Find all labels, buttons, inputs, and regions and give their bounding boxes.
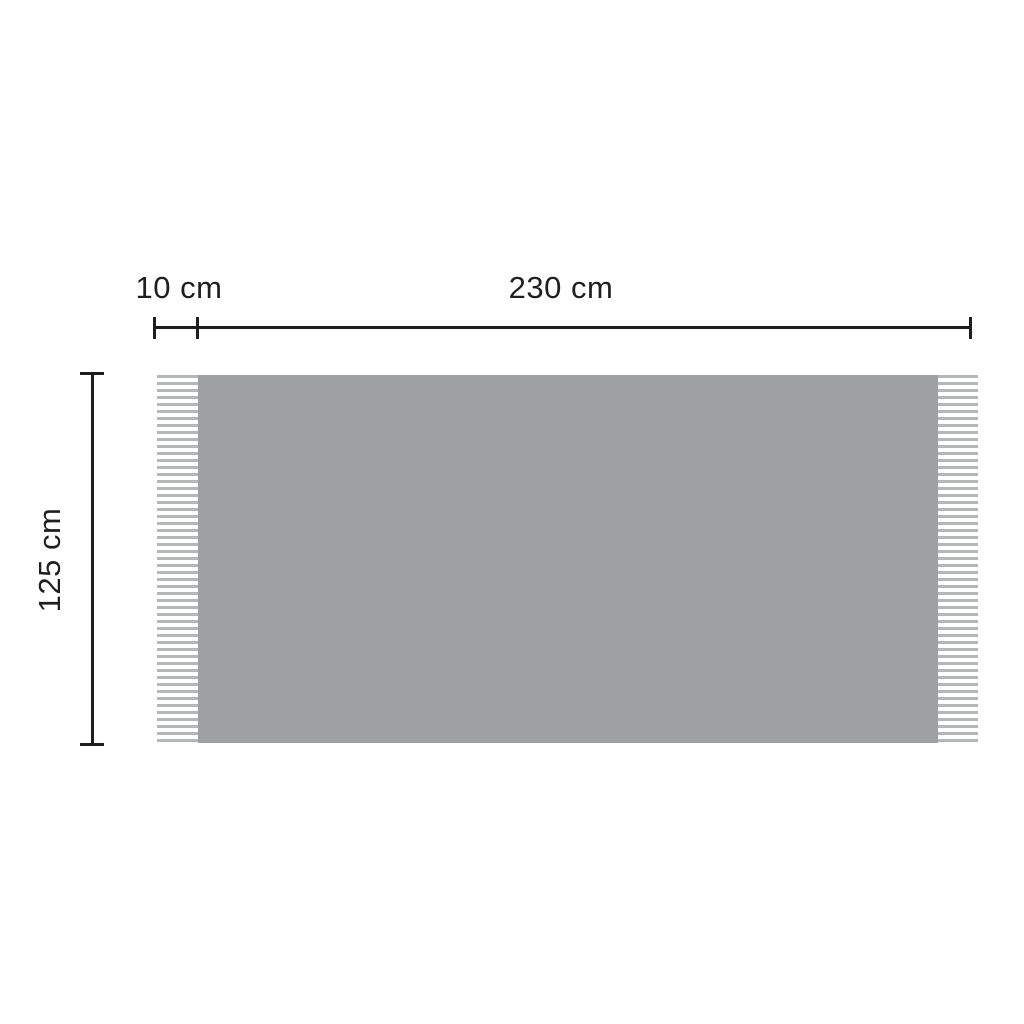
height-label: 125 cm — [33, 460, 73, 660]
blanket-left-fringe — [157, 375, 198, 743]
top-dimension-tick-left — [153, 317, 156, 339]
left-dimension-tick-bottom — [80, 743, 104, 746]
top-dimension-tick-right — [969, 317, 972, 339]
dimension-diagram: 10 cm 230 cm 125 cm — [0, 0, 1024, 1024]
blanket-body — [198, 375, 938, 743]
fringe-width-label: 10 cm — [104, 271, 254, 305]
left-dimension-tick-top — [80, 372, 104, 375]
left-dimension-line — [91, 373, 94, 746]
body-width-label: 230 cm — [461, 271, 661, 305]
blanket-right-fringe — [938, 375, 978, 743]
top-dimension-tick-middle — [196, 317, 199, 339]
top-dimension-line — [153, 326, 972, 329]
